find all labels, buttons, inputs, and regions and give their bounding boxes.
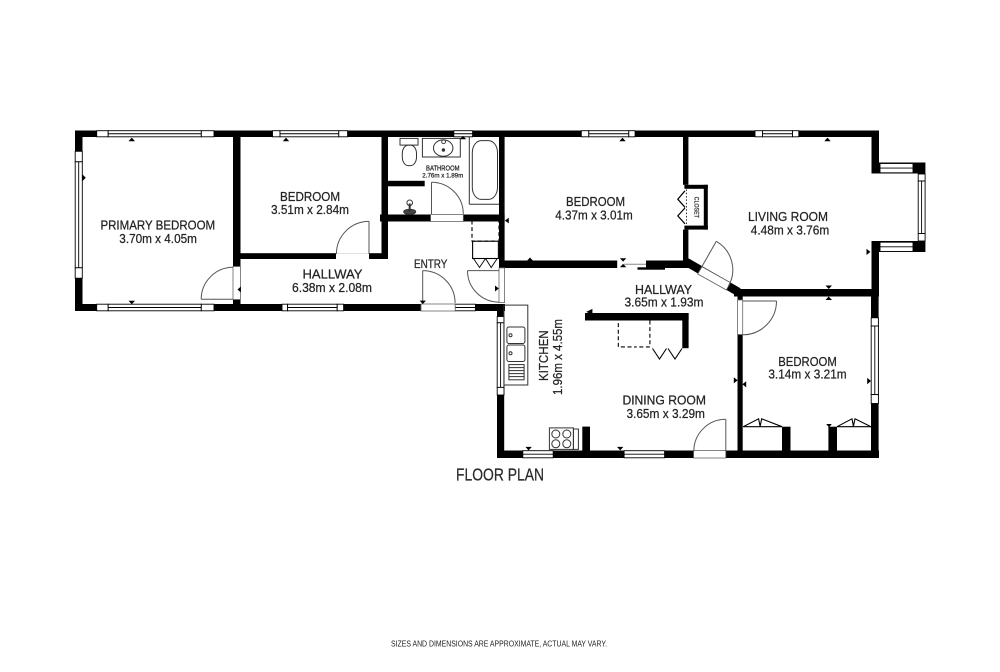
svg-text:2.76m x 1.89m: 2.76m x 1.89m [422,172,463,179]
svg-text:1.96m x 4.55m: 1.96m x 4.55m [550,319,565,395]
svg-text:ENTRY: ENTRY [414,259,448,271]
svg-text:3.70m x 4.05m: 3.70m x 4.05m [119,231,197,246]
svg-text:KITCHEN: KITCHEN [536,330,551,381]
svg-text:3.14m x 3.21m: 3.14m x 3.21m [768,367,846,382]
svg-text:BEDROOM: BEDROOM [566,194,625,209]
svg-text:4.48m x 3.76m: 4.48m x 3.76m [751,222,830,237]
svg-text:3.51m x 2.84m: 3.51m x 2.84m [271,202,349,217]
svg-text:3.65m x 3.29m: 3.65m x 3.29m [626,406,705,421]
svg-text:BATHROOM: BATHROOM [426,165,460,172]
svg-text:HALLWAY: HALLWAY [303,266,363,281]
svg-text:4.37m x 3.01m: 4.37m x 3.01m [555,208,633,223]
svg-text:FLOOR PLAN: FLOOR PLAN [456,465,544,485]
svg-text:3.65m x 1.93m: 3.65m x 1.93m [625,295,704,310]
svg-text:SIZES AND DIMENSIONS ARE APPRO: SIZES AND DIMENSIONS ARE APPROXIMATE, AC… [391,639,607,648]
svg-text:CLOSET: CLOSET [692,197,698,218]
svg-text:DINING ROOM: DINING ROOM [622,392,706,407]
svg-text:6.38m x 2.08m: 6.38m x 2.08m [292,280,372,295]
